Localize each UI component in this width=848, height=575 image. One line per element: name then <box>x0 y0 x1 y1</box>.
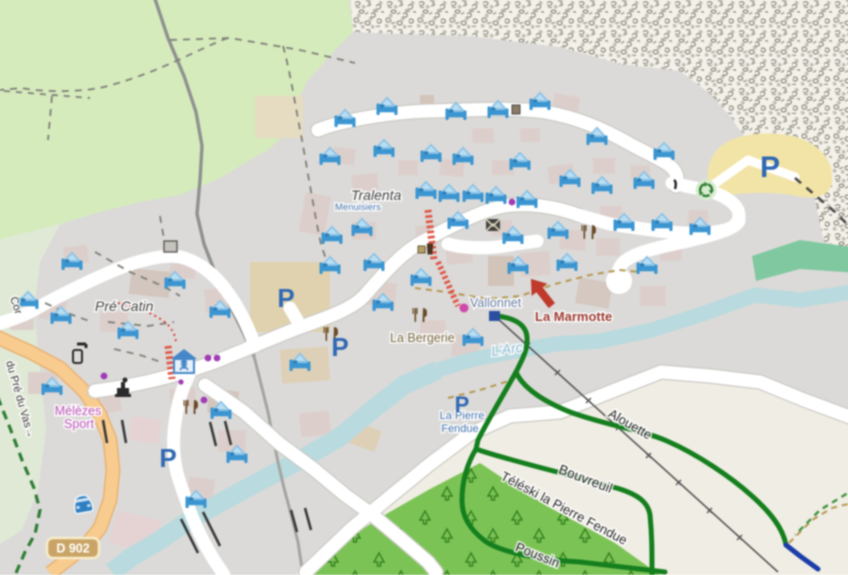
svg-text:Menuisiers: Menuisiers <box>335 202 381 213</box>
svg-text:Tralenta: Tralenta <box>351 187 402 203</box>
svg-text:P: P <box>331 332 348 362</box>
svg-text:Pré Catin: Pré Catin <box>95 298 154 314</box>
svg-text:D 902: D 902 <box>56 542 89 556</box>
svg-text:La Bergerie: La Bergerie <box>390 331 455 345</box>
svg-text:Fendue: Fendue <box>441 423 478 435</box>
svg-text:P: P <box>455 392 470 417</box>
svg-text:Sport: Sport <box>64 417 94 431</box>
svg-text:La Marmotte: La Marmotte <box>535 309 612 324</box>
svg-text:P: P <box>159 443 176 473</box>
svg-text:Vallonnet: Vallonnet <box>470 296 522 310</box>
svg-text:P: P <box>760 151 780 184</box>
svg-text:P: P <box>277 283 294 313</box>
svg-text:Mélèzes: Mélèzes <box>55 404 102 418</box>
